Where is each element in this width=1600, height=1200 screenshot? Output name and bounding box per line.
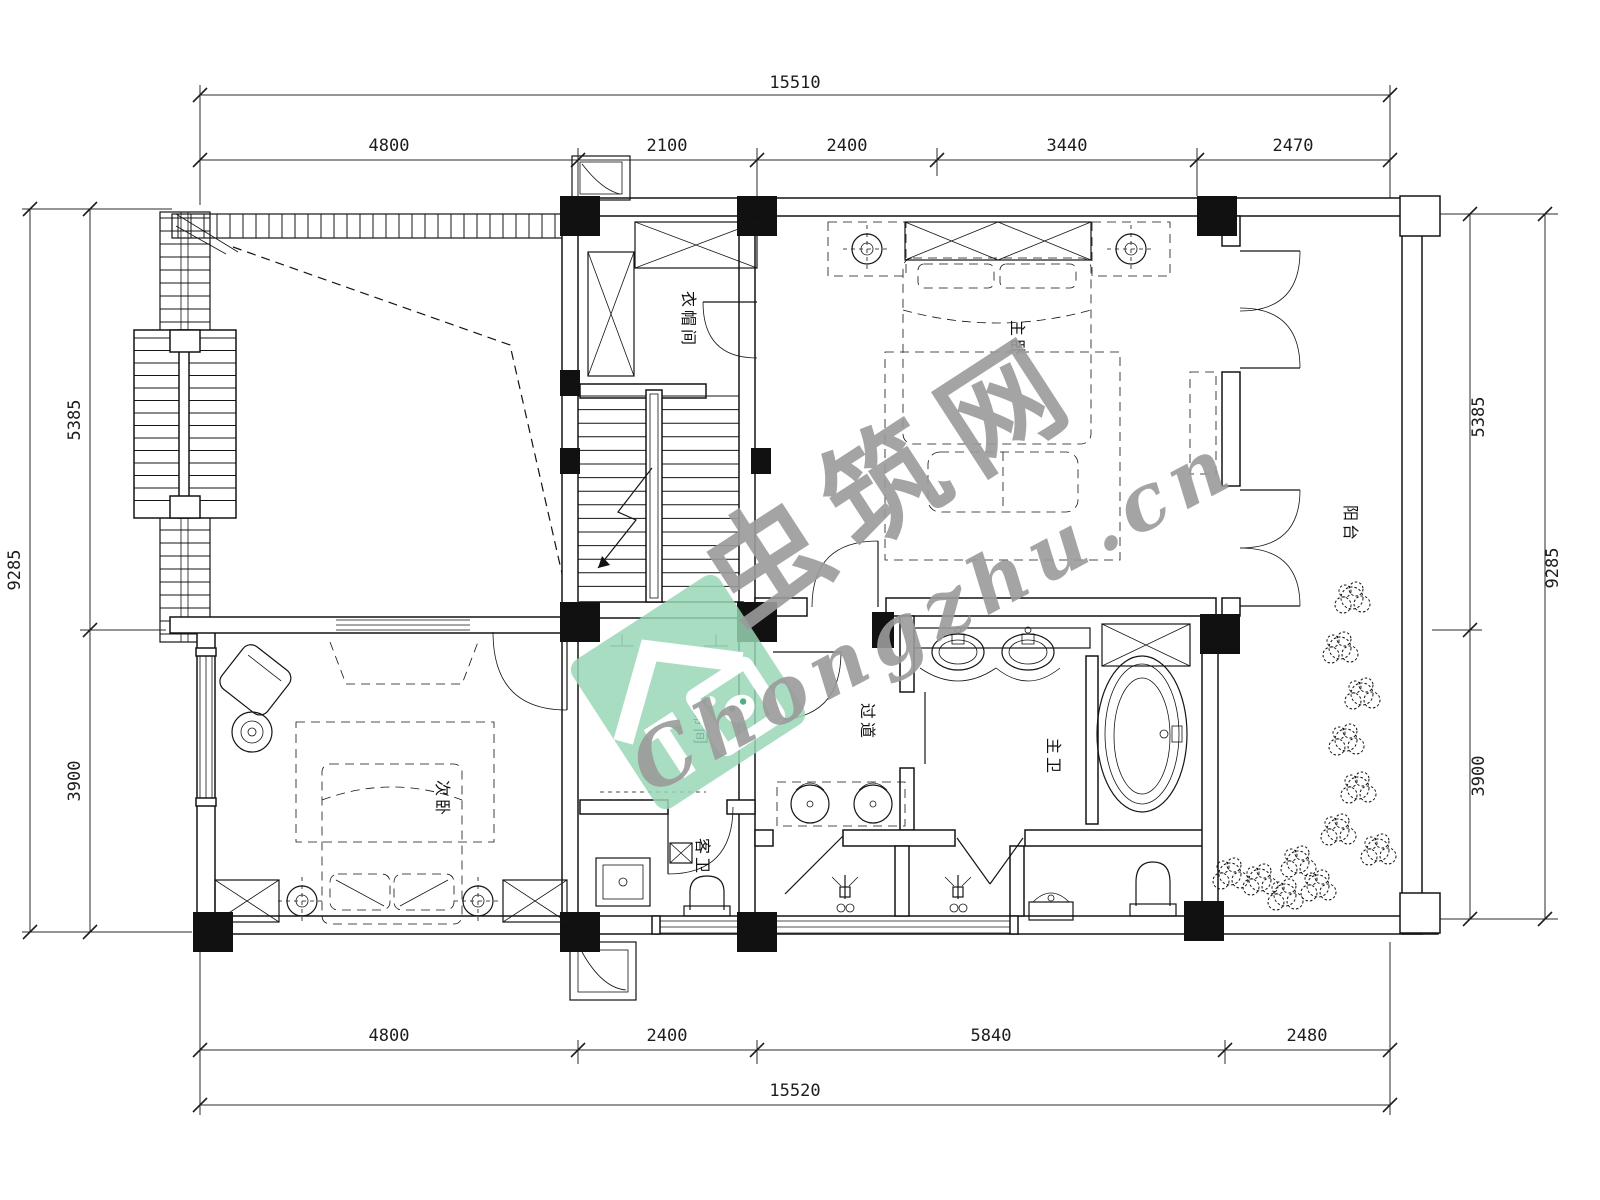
dim-top-seg: 3440 <box>1047 136 1088 156</box>
dim-right-seg: 3900 <box>1469 756 1489 797</box>
terrace <box>134 212 568 642</box>
room-label-guest-bath: 客卫 <box>693 838 712 876</box>
dim-right-seg: 5385 <box>1469 397 1489 438</box>
dimensions-top: 15510 4800 2100 2400 3440 2470 <box>193 73 1397 205</box>
second-bedroom <box>215 632 567 925</box>
room-label-closet: 衣帽间 <box>679 291 698 348</box>
floor-plan-canvas: 15510 4800 2100 2400 3440 2470 4800 2400… <box>0 0 1600 1200</box>
dim-bottom-seg: 5840 <box>971 1026 1012 1046</box>
dim-bottom-total: 15520 <box>769 1081 820 1101</box>
french-doors-upper <box>1240 251 1300 368</box>
shower-tray <box>596 858 650 906</box>
dim-top-total: 15510 <box>769 73 820 93</box>
flue-box-top <box>572 156 630 200</box>
armchair <box>216 641 295 719</box>
toilet-guest <box>684 876 730 916</box>
floorplan-page: 15510 4800 2100 2400 3440 2470 4800 2400… <box>0 0 1600 1200</box>
dimensions-right: 5385 3900 9285 <box>1432 207 1563 926</box>
corner-column-bottomright <box>1400 893 1440 933</box>
watermark: 虫筑网 Chongzhu.cn <box>566 306 1250 814</box>
room-label-master-bath: 主卫 <box>1044 738 1063 776</box>
balcony <box>1213 251 1396 910</box>
dim-top-seg: 4800 <box>369 136 410 156</box>
room-label-corridor: 过道 <box>858 703 877 741</box>
side-table <box>232 712 272 752</box>
dim-top-seg: 2400 <box>827 136 868 156</box>
dim-left-total: 9285 <box>5 550 25 591</box>
dim-left-seg: 3900 <box>65 761 85 802</box>
second-bedroom-door <box>493 632 567 710</box>
corner-column-topright <box>1400 196 1440 236</box>
dim-right-total: 9285 <box>1543 548 1563 589</box>
dim-bottom-seg: 2480 <box>1287 1026 1328 1046</box>
french-doors-lower <box>1240 490 1300 606</box>
balcony-plants <box>1213 582 1396 910</box>
shower-room-door <box>785 836 843 894</box>
roof-projection-line <box>233 247 568 600</box>
toilet-master <box>1130 862 1176 916</box>
dim-top-seg: 2100 <box>647 136 688 156</box>
dimensions-left: 5385 3900 9285 <box>5 202 192 939</box>
room-label-second-bedroom: 次卧 <box>433 780 452 818</box>
dim-top-seg: 2470 <box>1273 136 1314 156</box>
room-label-balcony: 阳台 <box>1341 505 1360 543</box>
dim-bottom-seg: 2400 <box>647 1026 688 1046</box>
closet <box>588 222 757 376</box>
dimensions-bottom: 4800 2400 5840 2480 15520 <box>193 942 1397 1115</box>
dim-bottom-seg: 4800 <box>369 1026 410 1046</box>
dim-left-seg: 5385 <box>65 400 85 441</box>
bathtub <box>1097 656 1187 812</box>
